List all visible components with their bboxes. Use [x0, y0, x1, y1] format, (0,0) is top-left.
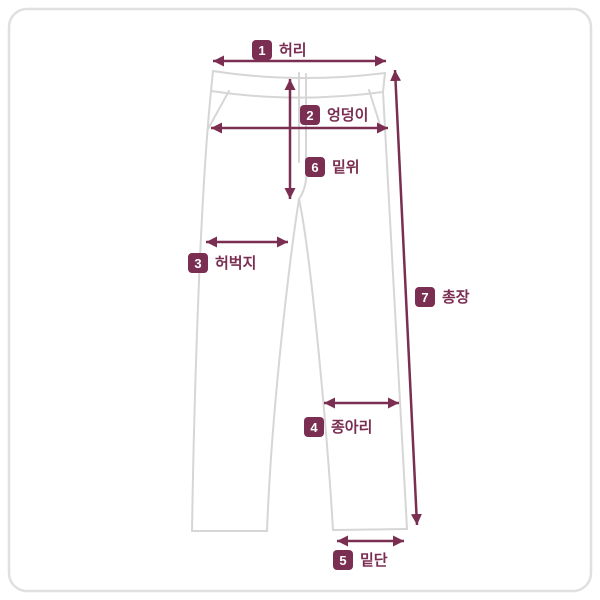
pants-diagram: [0, 0, 600, 600]
label-waist-number: 1: [252, 40, 272, 60]
label-calf-text: 종아리: [331, 420, 372, 435]
label-hip-number: 2: [300, 105, 320, 125]
label-rise-text: 밑위: [332, 160, 360, 175]
label-calf-number: 4: [304, 417, 324, 437]
label-calf: 4 종아리: [304, 417, 372, 437]
label-rise: 6 밑위: [305, 157, 360, 177]
label-length-text: 총장: [442, 290, 470, 305]
label-hem-number: 5: [333, 550, 353, 570]
size-guide-panel: 1 허리 2 엉덩이 3 허벅지 4 종아리 5 밑단 6 밑위 7 총장: [0, 0, 600, 600]
label-thigh-number: 3: [188, 253, 208, 273]
label-waist-text: 허리: [279, 43, 307, 58]
label-hem: 5 밑단: [333, 550, 388, 570]
right-hem-line: [333, 529, 407, 530]
label-length-number: 7: [415, 287, 435, 307]
label-length: 7 총장: [415, 287, 470, 307]
label-waist: 1 허리: [252, 40, 307, 60]
label-hip: 2 엉덩이: [300, 105, 368, 125]
label-rise-number: 6: [305, 157, 325, 177]
label-thigh-text: 허벅지: [215, 256, 256, 271]
label-thigh: 3 허벅지: [188, 253, 256, 273]
label-hip-text: 엉덩이: [327, 108, 368, 123]
label-hem-text: 밑단: [360, 553, 388, 568]
